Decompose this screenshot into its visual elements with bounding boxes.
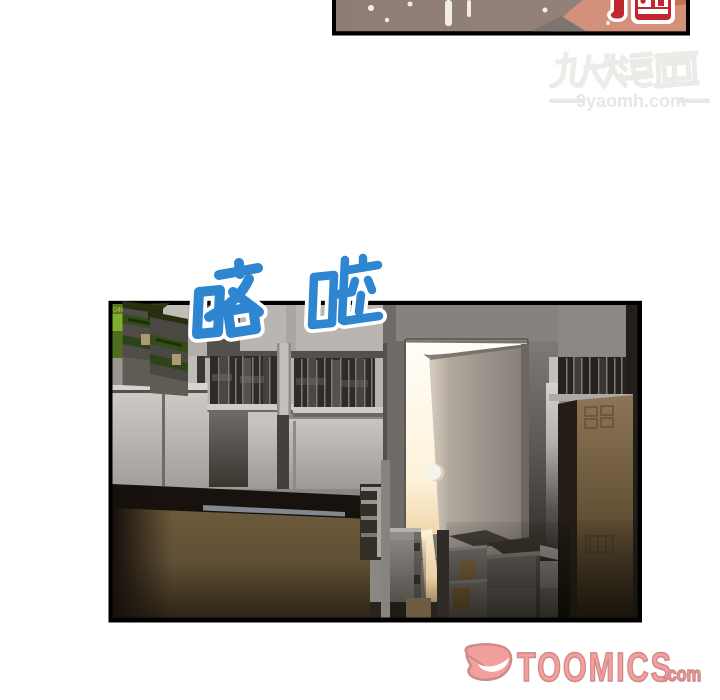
svg-text:TOOMICS: TOOMICS — [517, 644, 673, 690]
svg-text:9yaomh.com: 9yaomh.com — [576, 91, 686, 111]
svg-text:.com: .com — [663, 662, 701, 685]
